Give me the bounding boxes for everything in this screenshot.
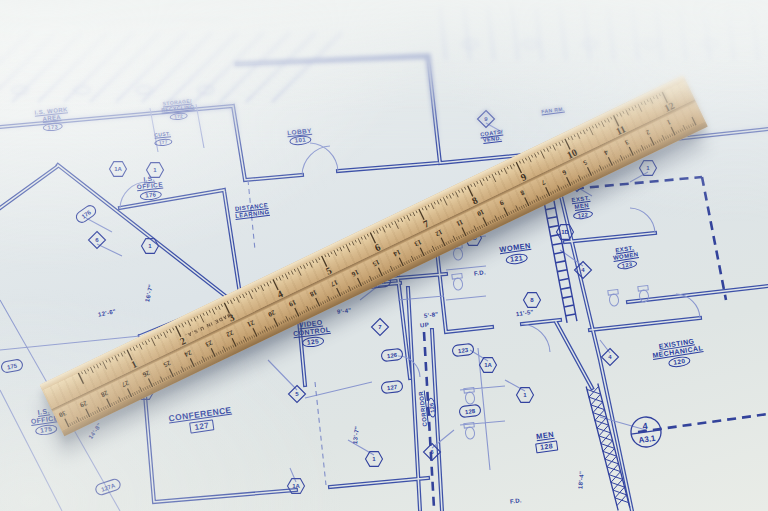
- svg-text:18: 18: [308, 288, 318, 298]
- dimension-text: 12'-6": [98, 308, 117, 318]
- room-name: I.S. WORK AREA: [34, 106, 68, 122]
- room-label: LOBBY101: [279, 126, 321, 147]
- room-number: 121: [505, 252, 529, 265]
- svg-text:29: 29: [78, 399, 88, 409]
- svg-text:16: 16: [350, 268, 360, 278]
- svg-text:11: 11: [454, 218, 464, 228]
- svg-text:1: 1: [665, 118, 672, 127]
- room-label: DISTANCE LEARNING: [219, 200, 284, 221]
- room-label: CONFERENCE127: [157, 404, 245, 438]
- room-name: CUST.: [154, 130, 171, 138]
- dimension-text: 14'-8": [87, 422, 102, 440]
- svg-text:14: 14: [392, 248, 402, 258]
- svg-text:13: 13: [413, 238, 423, 248]
- room-label: EXST. WOMEN123: [599, 242, 654, 273]
- room-name: EXISTING MECHANICAL: [652, 337, 704, 359]
- svg-text:10: 10: [475, 207, 485, 217]
- svg-text:8: 8: [519, 188, 526, 197]
- room-label: CUST.177: [146, 130, 179, 147]
- svg-text:22: 22: [224, 328, 234, 338]
- room-number: 175: [35, 424, 58, 436]
- svg-text:20: 20: [266, 308, 276, 318]
- room-number: 176: [140, 190, 162, 201]
- room-label: FAN RM.: [532, 105, 574, 116]
- room-name: COATS/ VEND.: [480, 129, 503, 144]
- room-name: LOBBY: [287, 127, 312, 137]
- plan-note: F.D.: [510, 497, 523, 504]
- svg-text:2: 2: [644, 128, 651, 137]
- blueprint-photo: 176175124A126127123128127A1A111A11D1D811…: [0, 0, 768, 511]
- room-name: I.S. OFFICE: [136, 174, 163, 190]
- svg-text:26: 26: [141, 368, 151, 378]
- dimension-text: 9'-4": [337, 307, 352, 315]
- room-number: 123: [616, 259, 637, 270]
- room-name: CORRIDOR: [418, 391, 428, 427]
- dimension-text: 18'-4": [577, 471, 585, 490]
- svg-text:27: 27: [120, 378, 130, 388]
- room-number: 177: [154, 138, 173, 147]
- room-number: 101: [289, 135, 311, 146]
- dimension-text: 11'-5": [516, 309, 534, 317]
- room-name: EXST. WOMEN: [613, 245, 639, 261]
- svg-text:30: 30: [57, 409, 67, 419]
- svg-text:5: 5: [581, 158, 588, 167]
- room-number: 120: [668, 355, 691, 368]
- room-label: MEN128: [523, 429, 569, 455]
- room-label: CORRIDOR126: [416, 377, 439, 439]
- room-number: 172: [169, 112, 188, 121]
- svg-text:15: 15: [371, 258, 381, 268]
- svg-text:23: 23: [203, 338, 213, 348]
- room-label: I.S. WORK AREA173: [19, 105, 85, 135]
- svg-text:7: 7: [540, 178, 547, 187]
- room-label: EXISTING MECHANICAL120: [634, 334, 721, 373]
- room-label: I.S. OFFICE176: [119, 172, 181, 203]
- dimension-text: 13'-7": [352, 426, 360, 445]
- room-label: EXST. MEN122: [559, 193, 606, 222]
- svg-text:4: 4: [602, 148, 609, 157]
- room-number: 127: [189, 419, 215, 433]
- dimension-text: 5'-8": [424, 311, 439, 319]
- svg-text:24: 24: [183, 348, 193, 358]
- svg-text:9: 9: [498, 198, 505, 207]
- room-number: 122: [572, 209, 593, 220]
- svg-text:21: 21: [245, 318, 255, 328]
- svg-text:17: 17: [329, 278, 339, 288]
- room-number: 126: [427, 397, 438, 418]
- svg-text:3: 3: [623, 138, 630, 147]
- svg-text:12: 12: [433, 228, 443, 238]
- room-name: DISTANCE LEARNING: [235, 202, 270, 219]
- svg-text:19: 19: [287, 298, 297, 308]
- svg-text:6: 6: [560, 168, 567, 177]
- plan-note: UP: [420, 321, 430, 328]
- dimension-text: 16'-7": [144, 284, 154, 303]
- room-name: EXST. MEN: [571, 195, 590, 210]
- room-label: STORAGE/ RECYCLING172: [151, 97, 205, 122]
- svg-text:25: 25: [162, 358, 172, 368]
- room-name: FAN RM.: [541, 106, 565, 115]
- svg-text:28: 28: [99, 389, 109, 399]
- plan-note: F.D.: [474, 269, 487, 277]
- room-name: STORAGE/ RECYCLING: [161, 98, 194, 113]
- room-number: 128: [535, 440, 559, 453]
- room-label: COATS/ VEND.: [467, 127, 516, 145]
- room-label: WOMEN121: [487, 240, 545, 267]
- room-number: 125: [302, 336, 325, 348]
- room-name: MEN: [536, 430, 555, 441]
- room-number: 173: [42, 122, 63, 132]
- room-name: WOMEN: [499, 241, 532, 254]
